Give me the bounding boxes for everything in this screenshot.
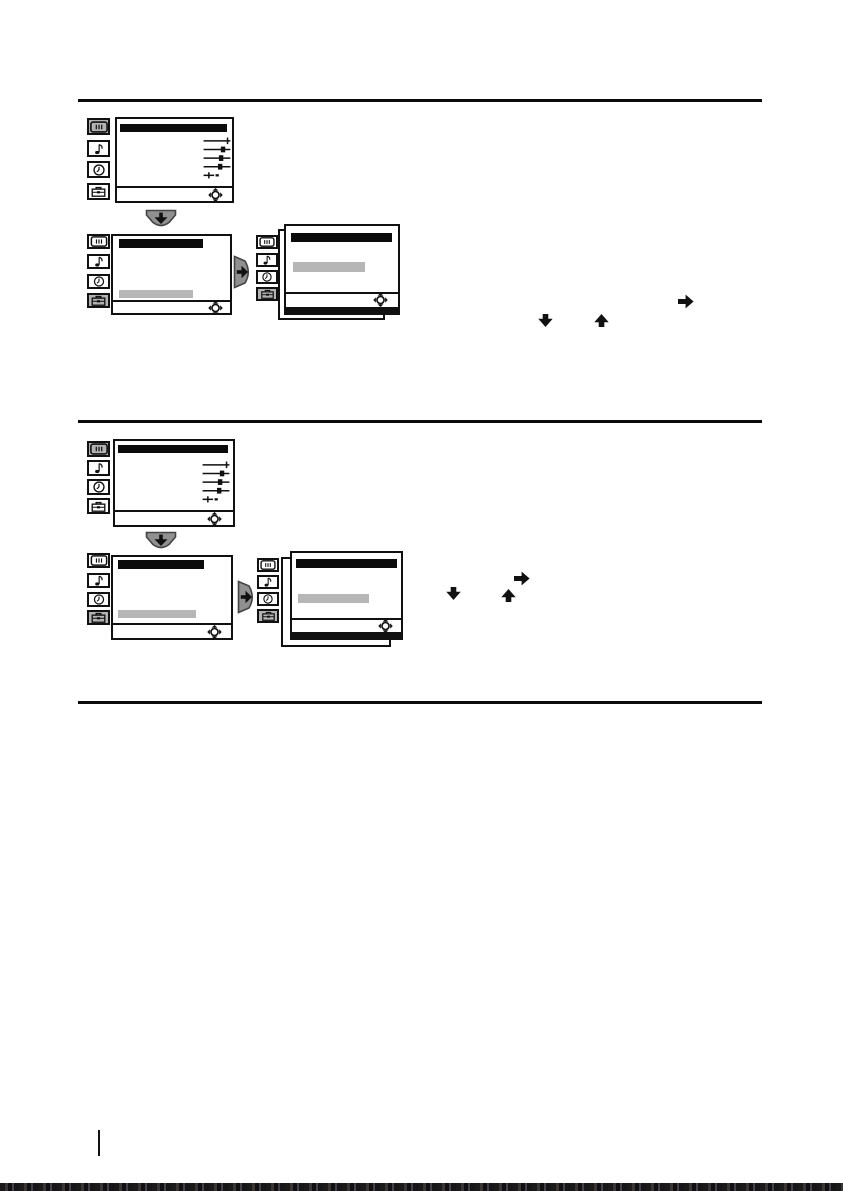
picture-icon bbox=[257, 558, 279, 572]
submenu-front-panel bbox=[290, 551, 403, 640]
nav-right-button bbox=[233, 255, 252, 289]
joystick-nav-icon bbox=[377, 619, 394, 633]
nav-down-button bbox=[145, 209, 177, 227]
clock-icon bbox=[87, 161, 110, 178]
menu-title-bar bbox=[296, 559, 397, 568]
joystick-nav-icon bbox=[206, 512, 223, 526]
music-note-icon bbox=[87, 254, 110, 269]
osd-screen-main-menu bbox=[115, 117, 234, 203]
music-note-icon bbox=[87, 460, 110, 476]
highlighted-menu-row bbox=[119, 290, 193, 298]
section-divider bbox=[78, 420, 762, 423]
clock-icon bbox=[87, 479, 110, 495]
menu-title-bar bbox=[119, 239, 203, 248]
toolbox-icon bbox=[87, 183, 110, 200]
clock-icon bbox=[257, 592, 279, 606]
scan-noise-band bbox=[0, 1183, 843, 1191]
music-note-icon bbox=[87, 140, 110, 157]
joystick-nav-icon bbox=[372, 293, 389, 307]
inline-arrow-down-icon bbox=[446, 587, 461, 600]
menu-title-bar bbox=[291, 233, 392, 242]
menu-title-bar bbox=[120, 124, 227, 132]
joystick-nav-icon bbox=[207, 301, 224, 315]
section-divider bbox=[78, 701, 762, 704]
toolbox-icon bbox=[257, 609, 279, 623]
menu-title-bar bbox=[118, 445, 228, 453]
submenu-front-panel bbox=[284, 224, 400, 315]
osd-screen-main-menu bbox=[113, 439, 235, 527]
toolbox-icon bbox=[87, 293, 110, 308]
joystick-nav-icon bbox=[207, 188, 224, 202]
highlighted-menu-row bbox=[293, 262, 365, 272]
picture-icon bbox=[87, 553, 110, 568]
clock-icon bbox=[256, 270, 278, 284]
clock-icon bbox=[87, 274, 110, 289]
picture-icon bbox=[87, 234, 110, 249]
music-note-icon bbox=[257, 575, 279, 589]
inline-arrow-right-icon bbox=[678, 294, 694, 309]
menu-title-bar bbox=[118, 560, 204, 569]
music-note-icon bbox=[256, 253, 278, 267]
adjustment-sliders bbox=[200, 461, 232, 507]
adjustment-sliders bbox=[201, 137, 233, 183]
inline-arrow-up-icon bbox=[501, 589, 516, 602]
highlighted-menu-row bbox=[118, 610, 196, 618]
nav-right-button bbox=[237, 580, 256, 614]
joystick-nav-icon bbox=[206, 625, 223, 639]
inline-arrow-down-icon bbox=[538, 314, 553, 327]
toolbox-icon bbox=[87, 610, 110, 625]
picture-icon bbox=[87, 118, 110, 135]
inline-arrow-right-icon bbox=[514, 571, 530, 586]
toolbox-icon bbox=[87, 498, 110, 514]
osd-screen-setup-menu bbox=[111, 234, 232, 315]
osd-screen-setup-menu bbox=[111, 555, 233, 640]
music-note-icon bbox=[87, 573, 110, 588]
manual-page bbox=[0, 0, 843, 1191]
section-divider bbox=[78, 99, 762, 102]
highlighted-menu-row bbox=[298, 594, 369, 603]
inline-arrow-up-icon bbox=[594, 314, 609, 327]
page-number-divider bbox=[98, 1130, 100, 1156]
picture-icon bbox=[256, 235, 278, 249]
toolbox-icon bbox=[256, 287, 278, 301]
picture-icon bbox=[87, 441, 110, 457]
clock-icon bbox=[87, 592, 110, 607]
nav-down-button bbox=[145, 531, 177, 549]
